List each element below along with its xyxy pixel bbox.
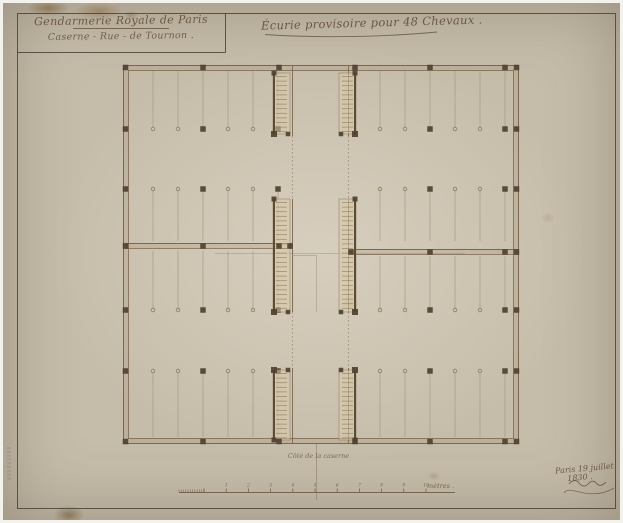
staircases (271, 71, 358, 443)
agency-name: Gendarmerie Royale de Paris (19, 13, 223, 29)
scale-tick-label: 2 (246, 483, 250, 489)
plan-drawing: 12345678910 (3, 3, 623, 523)
scale-tick-label: 4 (290, 483, 294, 489)
archive-stamp (7, 447, 11, 479)
scale-bar: 12345678910 (179, 483, 455, 493)
agency-address: Caserne - Rue - de Tournon . (19, 30, 223, 44)
staircase-ladder (339, 367, 358, 443)
staircase-ladder (271, 197, 290, 316)
scale-tick-label: 8 (380, 483, 383, 489)
scanned-drawing-sheet: 12345678910 Gendarmerie Royale de Paris … (0, 0, 623, 523)
title-underline-rule (73, 28, 169, 29)
staircase-ladder (271, 367, 290, 443)
staircase-ladder (339, 71, 358, 138)
staircase-ladder (339, 197, 358, 316)
title-flourish-underline (265, 32, 437, 37)
scale-tick-label: 5 (314, 483, 317, 489)
title-block: Gendarmerie Royale de Paris Caserne - Ru… (19, 14, 223, 42)
scale-tick-label: 7 (358, 483, 361, 489)
scale-tick-label: 1 (225, 483, 228, 489)
scale-tick-label: 3 (269, 483, 272, 489)
scale-tick-label: 9 (402, 483, 405, 489)
staircase-ladder (271, 71, 290, 138)
building-walls (124, 66, 519, 444)
scale-unit-label: mètres . (427, 482, 454, 490)
scale-tick-label: 6 (336, 483, 339, 489)
plan-side-label: Côté de la caserne (271, 452, 366, 460)
